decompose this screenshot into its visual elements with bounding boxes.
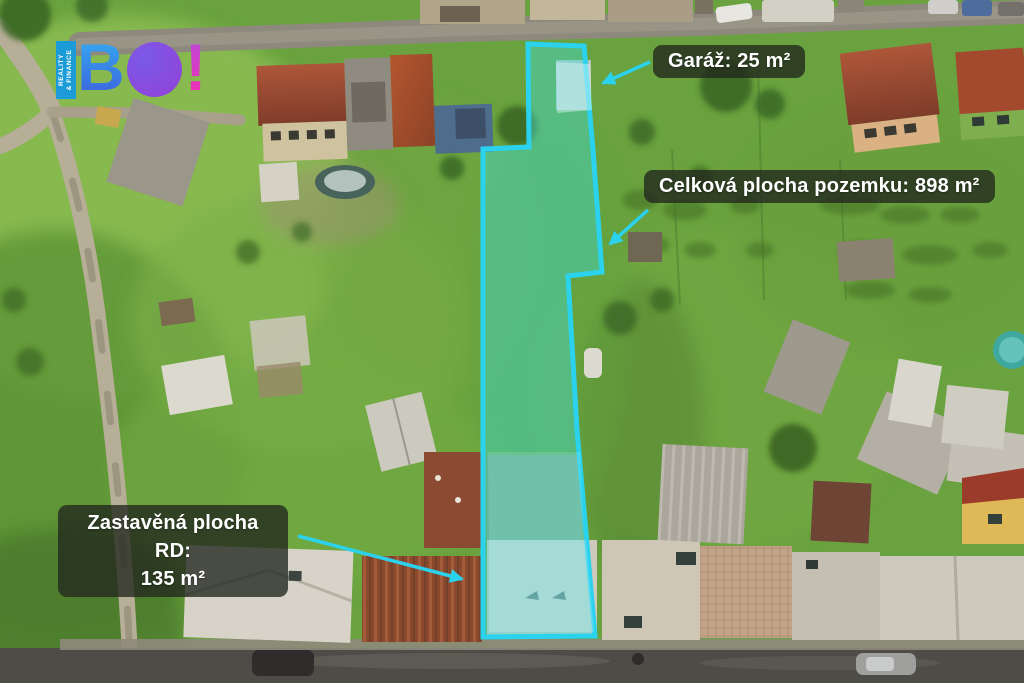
built-up-area-line1: Zastavěná plocha RD:	[70, 509, 276, 565]
bo-realty-logo: REALITY & FINANCE B O !	[56, 37, 207, 101]
aerial-photo: Garáž: 25 m² Celková plocha pozemku: 898…	[0, 0, 1024, 683]
house-roof-highlight-2	[489, 540, 594, 632]
logo-tagline-box: REALITY & FINANCE	[56, 41, 76, 99]
house-roof-highlight	[488, 452, 584, 540]
garage-highlight	[556, 62, 592, 113]
garage-area-label: Garáž: 25 m²	[653, 45, 805, 78]
total-plot-area-label: Celková plocha pozemku: 898 m²	[644, 170, 995, 203]
logo-letter-exclamation: !	[185, 37, 207, 97]
logo-letter-b: B	[77, 37, 125, 97]
built-up-area-label: Zastavěná plocha RD: 135 m²	[58, 505, 288, 597]
logo-tagline: REALITY & FINANCE	[58, 50, 74, 91]
built-up-area-line2: 135 m²	[70, 565, 276, 593]
logo-tagline-line2: & FINANCE	[66, 50, 73, 91]
houses-top-right	[840, 43, 1024, 153]
logo-tagline-line1: REALITY	[58, 54, 65, 86]
logo-letter-o: O	[127, 42, 182, 97]
